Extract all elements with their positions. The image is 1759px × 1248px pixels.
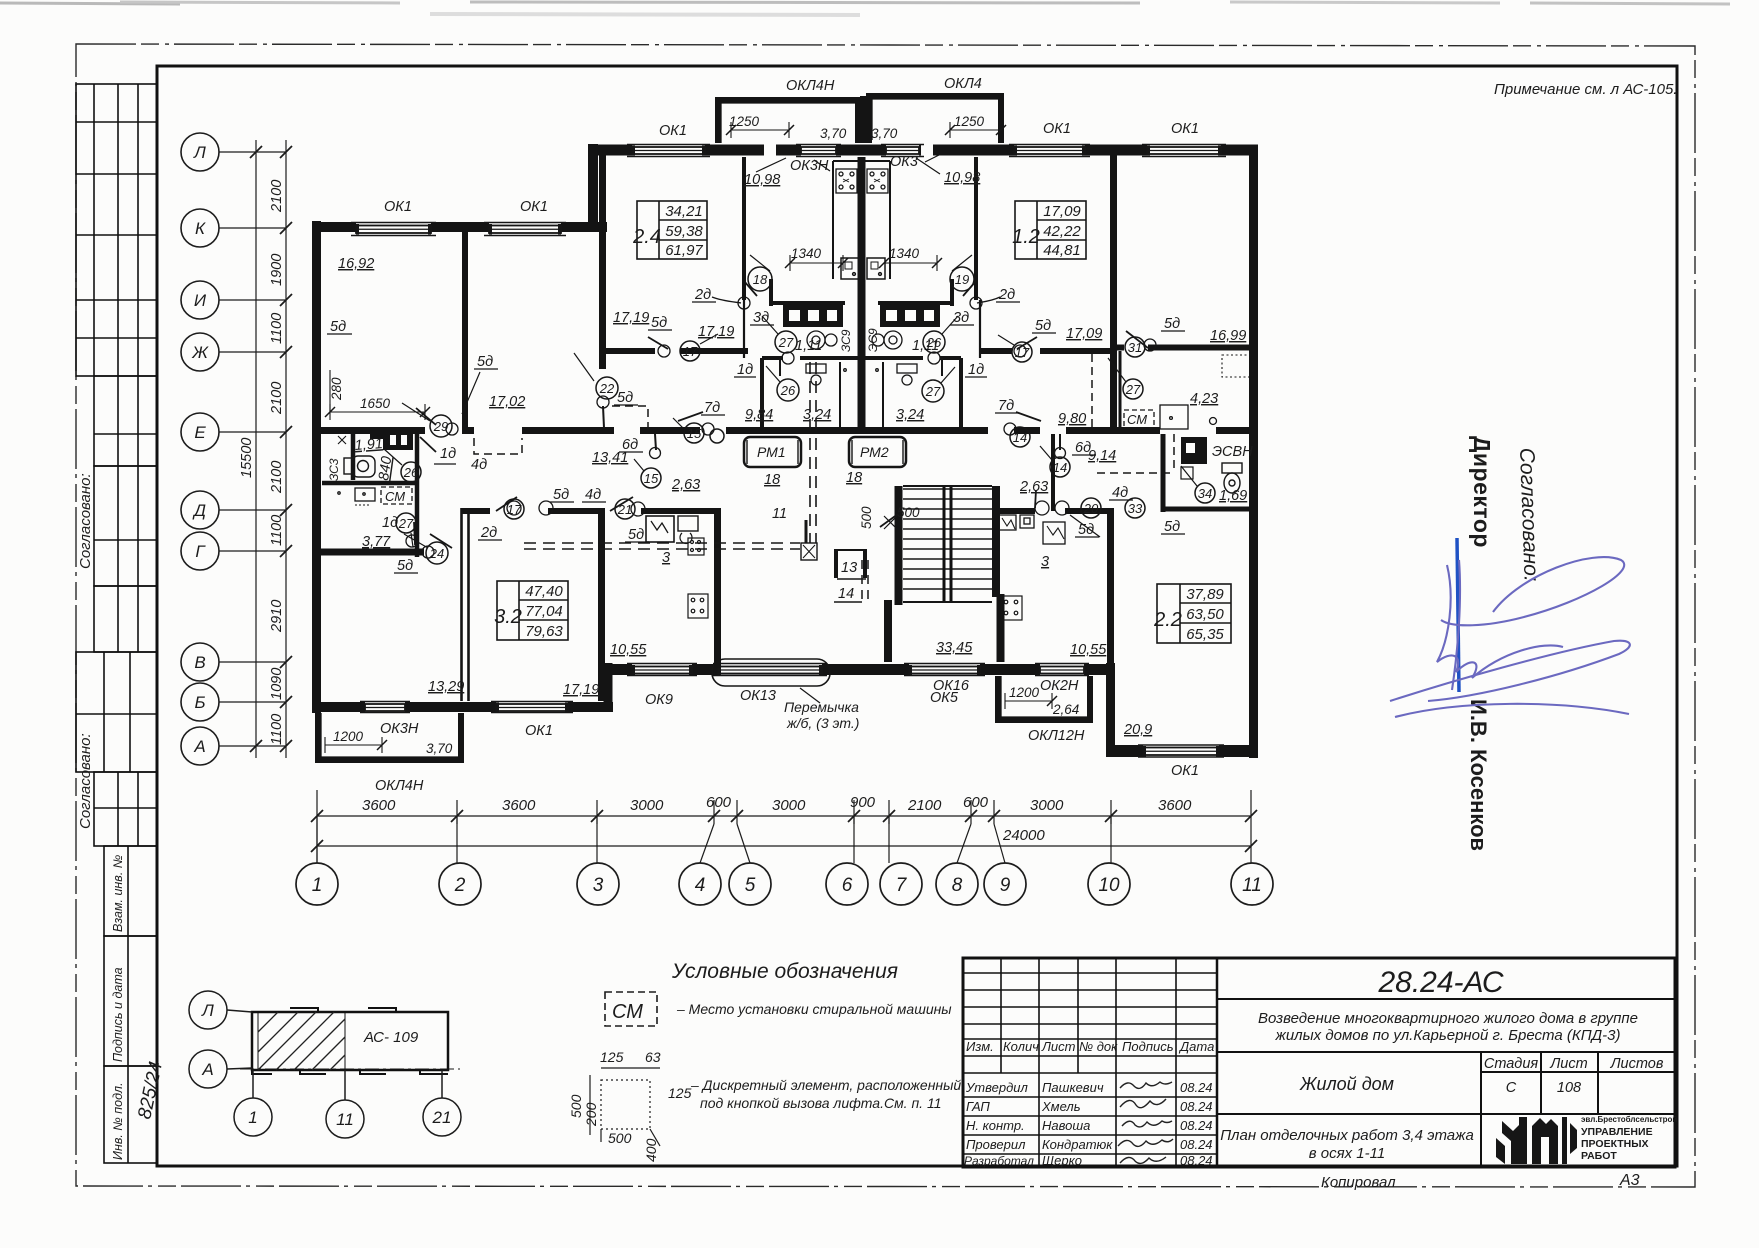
- svg-text:9,84: 9,84: [745, 407, 773, 423]
- svg-text:Дата: Дата: [1178, 1039, 1214, 1054]
- svg-text:Л: Л: [201, 1001, 214, 1020]
- svg-text:Инв. № подл.: Инв. № подл.: [111, 1082, 125, 1160]
- svg-text:27: 27: [398, 516, 414, 531]
- svg-text:26: 26: [926, 335, 942, 350]
- svg-text:600: 600: [706, 794, 732, 811]
- svg-text:33,45: 33,45: [936, 640, 973, 656]
- svg-text:Возведение многоквартирного жи: Возведение многоквартирного жилого дома …: [1258, 1010, 1638, 1027]
- svg-text:08.24: 08.24: [1180, 1118, 1213, 1133]
- svg-text:А3: А3: [1619, 1172, 1640, 1189]
- svg-text:1,11: 1,11: [795, 338, 822, 354]
- svg-text:13: 13: [841, 560, 857, 576]
- svg-text:С: С: [1506, 1080, 1517, 1096]
- svg-text:08.24: 08.24: [1180, 1153, 1213, 1168]
- svg-text:7д: 7д: [704, 400, 720, 416]
- svg-text:Щерко: Щерко: [1042, 1153, 1082, 1168]
- svg-text:1100: 1100: [269, 515, 285, 546]
- svg-text:Взам. инв. №: Взам. инв. №: [111, 854, 125, 932]
- svg-text:4д: 4д: [1112, 485, 1128, 501]
- svg-text:РМ1: РМ1: [757, 444, 786, 460]
- svg-text:11: 11: [336, 1110, 354, 1129]
- svg-text:Подпись: Подпись: [1122, 1039, 1174, 1054]
- svg-text:3: 3: [593, 875, 604, 896]
- svg-text:3600: 3600: [362, 797, 396, 814]
- svg-text:500: 500: [568, 1094, 584, 1118]
- svg-text:2100: 2100: [269, 180, 285, 213]
- svg-text:1100: 1100: [269, 313, 285, 344]
- svg-text:08.24: 08.24: [1180, 1099, 1213, 1114]
- svg-text:3600: 3600: [1158, 797, 1192, 814]
- svg-text:2.2: 2.2: [1153, 609, 1182, 631]
- svg-text:2д: 2д: [694, 287, 711, 303]
- svg-text:УПРАВЛЕНИЕ: УПРАВЛЕНИЕ: [1581, 1126, 1653, 1138]
- svg-text:500: 500: [608, 1130, 632, 1146]
- svg-text:ОК1: ОК1: [525, 723, 553, 739]
- svg-text:26: 26: [403, 465, 419, 480]
- svg-text:280: 280: [329, 377, 344, 401]
- svg-text:Разработал: Разработал: [964, 1154, 1034, 1168]
- svg-text:Утвердил: Утвердил: [965, 1080, 1029, 1095]
- svg-text:17,09: 17,09: [1066, 326, 1102, 342]
- svg-text:33: 33: [1128, 501, 1143, 516]
- svg-text:5д: 5д: [397, 558, 413, 574]
- svg-text:29: 29: [433, 419, 448, 434]
- svg-text:в осях 1-11: в осях 1-11: [1309, 1145, 1385, 1162]
- svg-text:15: 15: [644, 471, 659, 486]
- svg-text:ОК9: ОК9: [645, 692, 673, 708]
- svg-text:ОК2Н: ОК2Н: [1040, 678, 1079, 694]
- svg-text:24000: 24000: [1002, 827, 1045, 844]
- svg-text:27: 27: [778, 335, 794, 350]
- svg-text:2,63: 2,63: [671, 477, 700, 493]
- svg-text:1250: 1250: [954, 114, 985, 129]
- svg-text:СМ: СМ: [385, 489, 405, 504]
- svg-text:ОКЛ12Н: ОКЛ12Н: [1028, 728, 1085, 744]
- svg-text:Примечание см. л АС-105.: Примечание см. л АС-105.: [1494, 81, 1677, 98]
- svg-text:Лист: Лист: [1041, 1039, 1076, 1054]
- svg-text:Директор: Директор: [1469, 436, 1495, 548]
- svg-text:Согласовано:: Согласовано:: [77, 473, 94, 569]
- svg-text:1090: 1090: [269, 668, 285, 700]
- svg-text:4: 4: [695, 875, 706, 896]
- svg-text:План отделочных работ 3,4 этаж: План отделочных работ 3,4 этажа: [1220, 1127, 1474, 1144]
- svg-text:5д: 5д: [617, 390, 633, 406]
- svg-text:20: 20: [1083, 501, 1099, 516]
- svg-text:2: 2: [454, 875, 466, 896]
- svg-text:РМ2: РМ2: [860, 444, 889, 460]
- svg-text:14: 14: [838, 586, 854, 602]
- svg-text:1650: 1650: [360, 396, 391, 411]
- svg-text:08.24: 08.24: [1180, 1137, 1213, 1152]
- svg-text:ПРОЕКТНЫХ: ПРОЕКТНЫХ: [1581, 1138, 1649, 1150]
- svg-text:5д: 5д: [1078, 522, 1094, 538]
- svg-text:ОК1: ОК1: [1171, 763, 1199, 779]
- svg-text:1200: 1200: [1009, 685, 1040, 700]
- svg-text:5д: 5д: [477, 354, 493, 370]
- svg-text:3: 3: [1041, 554, 1049, 570]
- svg-text:7д: 7д: [998, 398, 1014, 414]
- svg-text:10,55: 10,55: [1070, 642, 1107, 658]
- svg-text:ОК1: ОК1: [1171, 121, 1199, 137]
- svg-text:108: 108: [1557, 1080, 1581, 1096]
- svg-text:2д: 2д: [480, 525, 497, 541]
- svg-text:К: К: [195, 219, 206, 238]
- svg-text:11: 11: [1242, 875, 1262, 896]
- svg-text:42,22: 42,22: [1043, 223, 1081, 240]
- svg-text:17,09: 17,09: [1043, 203, 1081, 220]
- svg-text:18: 18: [764, 472, 780, 488]
- svg-text:7: 7: [896, 875, 908, 896]
- svg-text:1100: 1100: [269, 714, 285, 745]
- svg-text:10,98: 10,98: [944, 170, 980, 186]
- svg-text:19: 19: [955, 272, 969, 287]
- svg-text:3000: 3000: [1030, 797, 1064, 814]
- svg-text:Лист: Лист: [1549, 1056, 1587, 1072]
- svg-text:№ док: № док: [1079, 1039, 1118, 1054]
- svg-text:Колич: Колич: [1003, 1039, 1039, 1054]
- svg-text:34,21: 34,21: [665, 203, 703, 220]
- svg-text:1,91: 1,91: [354, 436, 383, 454]
- svg-text:26: 26: [780, 383, 796, 398]
- svg-text:59,38: 59,38: [665, 223, 703, 240]
- svg-text:А: А: [201, 1060, 213, 1079]
- svg-text:– Место установки стиральной м: – Место установки стиральной машины: [676, 1001, 952, 1017]
- svg-text:АС- 109: АС- 109: [363, 1029, 419, 1046]
- svg-text:ОК5: ОК5: [930, 690, 959, 706]
- svg-text:Е: Е: [194, 423, 206, 442]
- svg-text:ОК1: ОК1: [1043, 121, 1071, 137]
- svg-text:ОК1: ОК1: [384, 199, 412, 215]
- svg-text:3д: 3д: [953, 310, 969, 326]
- svg-text:Стадия: Стадия: [1484, 1056, 1539, 1072]
- svg-text:10: 10: [1098, 875, 1120, 896]
- svg-text:08.24: 08.24: [1180, 1080, 1213, 1095]
- svg-text:ОКЛ4Н: ОКЛ4Н: [786, 78, 835, 94]
- svg-text:125: 125: [600, 1049, 624, 1065]
- svg-text:5д: 5д: [1035, 318, 1051, 334]
- svg-text:2,64: 2,64: [1052, 702, 1079, 717]
- svg-text:22: 22: [599, 381, 615, 396]
- svg-text:3,24: 3,24: [803, 407, 831, 423]
- svg-text:5д: 5д: [651, 315, 667, 331]
- svg-text:– Дискретный элемент, располож: – Дискретный элемент, расположенный: [690, 1077, 961, 1093]
- svg-text:10,98: 10,98: [744, 172, 780, 188]
- svg-text:1: 1: [248, 1108, 257, 1127]
- svg-text:ОК3Н: ОК3Н: [380, 721, 419, 737]
- svg-text:ЭС9: ЭС9: [866, 328, 880, 352]
- svg-text:8: 8: [952, 875, 963, 896]
- svg-text:Б: Б: [194, 693, 205, 712]
- svg-text:4д: 4д: [471, 457, 487, 473]
- svg-text:2д: 2д: [998, 287, 1015, 303]
- svg-text:ГАП: ГАП: [966, 1099, 990, 1114]
- svg-text:840: 840: [376, 455, 395, 481]
- svg-text:жилых домов по ул.Карьерной г: жилых домов по ул.Карьерной г. Бреста (К…: [1275, 1027, 1621, 1044]
- svg-text:9: 9: [1000, 875, 1011, 896]
- svg-text:79,63: 79,63: [525, 623, 563, 640]
- svg-text:Согласовано:: Согласовано:: [77, 733, 94, 829]
- svg-text:34: 34: [1198, 486, 1212, 501]
- svg-text:3,70: 3,70: [426, 741, 453, 756]
- svg-text:5д: 5д: [628, 527, 644, 543]
- svg-text:3,77: 3,77: [362, 534, 391, 550]
- svg-text:21: 21: [617, 502, 632, 517]
- svg-text:13,29: 13,29: [428, 679, 464, 695]
- svg-text:1д: 1д: [737, 362, 753, 378]
- svg-text:6д: 6д: [1075, 440, 1091, 456]
- svg-text:Условные обозначения: Условные обозначения: [671, 960, 898, 983]
- svg-text:900: 900: [850, 794, 876, 811]
- svg-text:6: 6: [842, 875, 853, 896]
- svg-text:17,19: 17,19: [698, 324, 734, 340]
- svg-text:РАБОТ: РАБОТ: [1581, 1150, 1617, 1162]
- svg-text:Жилой дом: Жилой дом: [1299, 1074, 1394, 1094]
- svg-text:14: 14: [1013, 430, 1027, 445]
- svg-text:28.24-АС: 28.24-АС: [1377, 966, 1503, 999]
- svg-text:400: 400: [643, 1138, 659, 1162]
- svg-text:5: 5: [745, 875, 756, 896]
- svg-text:1340: 1340: [791, 246, 822, 261]
- svg-text:ОК1: ОК1: [520, 199, 548, 215]
- svg-text:1900: 1900: [269, 254, 285, 286]
- svg-text:500: 500: [859, 506, 874, 529]
- svg-text:63: 63: [645, 1049, 661, 1065]
- svg-text:21: 21: [432, 1108, 452, 1127]
- svg-text:1д: 1д: [440, 446, 456, 462]
- svg-text:16,99: 16,99: [1210, 328, 1246, 344]
- svg-text:5д: 5д: [1164, 316, 1180, 332]
- svg-text:65,35: 65,35: [1186, 626, 1224, 643]
- svg-text:2910: 2910: [269, 600, 285, 633]
- svg-text:3600: 3600: [502, 797, 536, 814]
- svg-text:3,70: 3,70: [820, 126, 847, 141]
- svg-text:Проверил: Проверил: [966, 1137, 1026, 1152]
- svg-text:А: А: [193, 737, 205, 756]
- svg-text:Согласовано:: Согласовано:: [1515, 447, 1543, 582]
- svg-text:6д: 6д: [622, 437, 638, 453]
- svg-text:4,23: 4,23: [1190, 391, 1218, 407]
- svg-text:17,19: 17,19: [613, 310, 649, 326]
- svg-text:СМ: СМ: [612, 1001, 643, 1023]
- svg-text:9,80: 9,80: [1058, 411, 1086, 427]
- svg-text:Листов: Листов: [1610, 1056, 1664, 1072]
- svg-text:10,55: 10,55: [610, 642, 647, 658]
- svg-text:Пашкевич: Пашкевич: [1042, 1080, 1104, 1095]
- svg-text:ОКЛ4Н: ОКЛ4Н: [375, 778, 424, 794]
- svg-text:ЗС9: ЗС9: [839, 329, 853, 352]
- svg-text:600: 600: [963, 794, 989, 811]
- svg-text:эвл.Брестоблсельстрой: эвл.Брестоблсельстрой: [1581, 1115, 1677, 1124]
- svg-text:Копировал: Копировал: [1321, 1174, 1396, 1191]
- svg-text:1340: 1340: [889, 246, 920, 261]
- svg-text:2,63: 2,63: [1019, 479, 1048, 495]
- svg-text:31: 31: [1128, 340, 1142, 355]
- svg-text:Навоша: Навоша: [1042, 1118, 1090, 1133]
- svg-text:3,24: 3,24: [896, 407, 924, 423]
- svg-text:Кондратюк: Кондратюк: [1042, 1137, 1113, 1152]
- svg-text:27: 27: [1125, 382, 1141, 397]
- svg-text:17: 17: [683, 344, 698, 359]
- svg-text:77,04: 77,04: [525, 603, 563, 620]
- svg-text:17,19: 17,19: [563, 682, 599, 698]
- svg-text:44,81: 44,81: [1043, 242, 1081, 259]
- svg-text:под кнопкой вызова лифта.См. п: под кнопкой вызова лифта.См. п. 11: [700, 1095, 941, 1111]
- svg-text:ОК13: ОК13: [740, 688, 776, 704]
- svg-text:Н. контр.: Н. контр.: [966, 1118, 1025, 1133]
- svg-text:1д: 1д: [968, 362, 984, 378]
- svg-text:3,70: 3,70: [871, 126, 898, 141]
- svg-text:63,50: 63,50: [1186, 606, 1224, 623]
- svg-text:5д: 5д: [1164, 519, 1180, 535]
- svg-text:11: 11: [772, 506, 787, 522]
- svg-text:24: 24: [429, 546, 444, 561]
- svg-text:14: 14: [1053, 460, 1067, 475]
- svg-text:2100: 2100: [269, 461, 285, 494]
- svg-text:Хмель: Хмель: [1041, 1099, 1081, 1114]
- svg-text:ОК1: ОК1: [659, 123, 687, 139]
- svg-text:2.4: 2.4: [632, 226, 661, 248]
- svg-text:СМ: СМ: [1127, 412, 1147, 427]
- svg-text:Ж: Ж: [191, 343, 209, 362]
- svg-text:17,02: 17,02: [489, 394, 525, 410]
- svg-text:ЭСВН: ЭСВН: [1212, 444, 1253, 460]
- svg-text:5д: 5д: [330, 319, 346, 335]
- svg-text:2100: 2100: [907, 797, 942, 814]
- svg-text:ОК3: ОК3: [890, 154, 918, 170]
- svg-text:И.В. Косенков: И.В. Косенков: [1466, 699, 1491, 851]
- svg-text:37,89: 37,89: [1186, 586, 1224, 603]
- svg-text:18: 18: [753, 272, 768, 287]
- svg-text:200: 200: [583, 1102, 599, 1127]
- svg-text:15500: 15500: [239, 438, 255, 478]
- svg-text:3д: 3д: [753, 310, 769, 326]
- svg-text:И: И: [194, 291, 207, 310]
- svg-text:20,9: 20,9: [1123, 722, 1152, 738]
- svg-text:27: 27: [925, 384, 941, 399]
- svg-text:ОКЛ4: ОКЛ4: [944, 76, 982, 92]
- svg-text:500: 500: [897, 505, 920, 520]
- svg-text:17: 17: [1015, 345, 1030, 360]
- svg-text:17: 17: [507, 502, 522, 517]
- svg-text:4д: 4д: [585, 487, 601, 503]
- svg-text:Изм.: Изм.: [966, 1039, 994, 1054]
- svg-text:18: 18: [846, 470, 862, 486]
- svg-text:61,97: 61,97: [665, 242, 703, 259]
- svg-text:15: 15: [687, 426, 702, 441]
- svg-text:3: 3: [662, 550, 670, 566]
- svg-text:Перемычка: Перемычка: [784, 699, 859, 715]
- svg-text:В: В: [194, 653, 205, 672]
- svg-text:Подпись и дата: Подпись и дата: [111, 967, 125, 1062]
- svg-text:Д: Д: [192, 501, 206, 520]
- svg-text:2100: 2100: [269, 382, 285, 415]
- svg-text:3000: 3000: [630, 797, 664, 814]
- svg-text:3.2: 3.2: [494, 606, 522, 628]
- svg-text:5д: 5д: [553, 487, 569, 503]
- svg-text:1,69: 1,69: [1219, 488, 1247, 504]
- svg-text:Л: Л: [193, 143, 206, 162]
- svg-text:1: 1: [312, 875, 323, 896]
- svg-text:ЗС3: ЗС3: [327, 458, 341, 481]
- svg-text:ж/б, (3 эт.): ж/б, (3 эт.): [786, 715, 859, 731]
- svg-text:1200: 1200: [333, 729, 364, 744]
- svg-text:9,14: 9,14: [1088, 448, 1116, 464]
- svg-text:125: 125: [668, 1085, 692, 1101]
- svg-text:3000: 3000: [772, 797, 806, 814]
- svg-text:47,40: 47,40: [525, 583, 563, 600]
- svg-text:16,92: 16,92: [338, 256, 374, 272]
- svg-text:1.2: 1.2: [1012, 226, 1040, 248]
